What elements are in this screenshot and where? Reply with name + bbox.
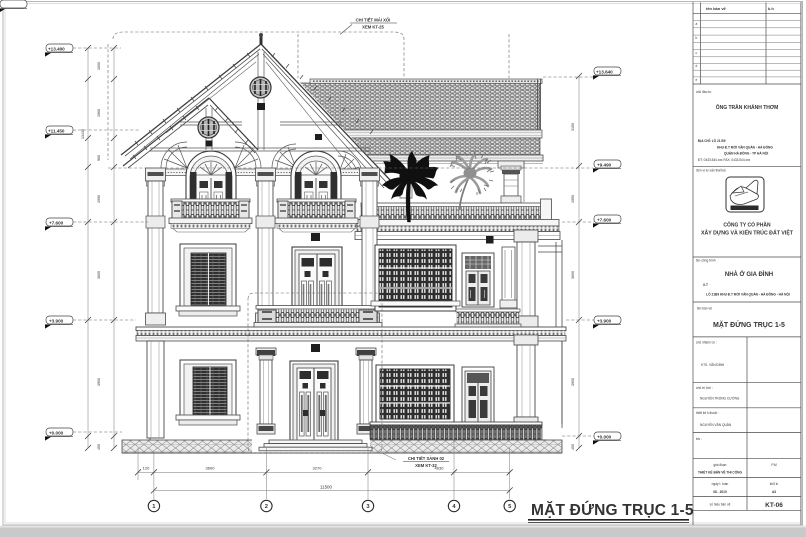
svg-text:3270: 3270 <box>313 466 323 471</box>
svg-text:3900: 3900 <box>571 378 575 386</box>
svg-text:3600: 3600 <box>97 271 101 279</box>
svg-text:ĐT: 0433.544.xxx FAX: 0433.: ĐT: 0433.544.xxx FAX: 0433.544.xxx <box>698 158 751 162</box>
svg-text:LÔ 21B9 KHU Đ.T MỚI VĂN QUÁN -: LÔ 21B9 KHU Đ.T MỚI VĂN QUÁN - HÀ ĐÔNG -… <box>706 292 790 297</box>
svg-text:+11.450: +11.450 <box>48 129 65 134</box>
svg-text:chủ đầu tư: chủ đầu tư <box>696 90 712 94</box>
svg-text:MẶT ĐỨNG TRỤC 1-5: MẶT ĐỨNG TRỤC 1-5 <box>531 501 694 519</box>
svg-text:CHI TIẾT MÁI XỐI: CHI TIẾT MÁI XỐI <box>356 18 391 23</box>
svg-text:+13.640: +13.640 <box>596 70 613 75</box>
svg-text:ngày t. toán: ngày t. toán <box>712 482 729 486</box>
svg-text:4630: 4630 <box>435 466 445 471</box>
svg-text:b: b <box>696 36 698 40</box>
svg-text:NGUYỄN TRỌNG CƯỜNG: NGUYỄN TRỌNG CƯỜNG <box>700 396 740 401</box>
svg-text:A3: A3 <box>772 490 776 494</box>
svg-text:thiết kế k.thuật :: thiết kế k.thuật : <box>696 411 719 415</box>
svg-text:+3.900: +3.900 <box>597 319 612 324</box>
svg-text:KT-06: KT-06 <box>765 502 783 509</box>
svg-text:X.T: X.T <box>703 283 708 287</box>
svg-text:NHÀ Ở GIA ĐÌNH: NHÀ Ở GIA ĐÌNH <box>725 270 773 278</box>
svg-text:450: 450 <box>97 444 101 450</box>
svg-text:13430: 13430 <box>81 129 85 139</box>
svg-text:1990: 1990 <box>97 195 101 203</box>
svg-text:3150: 3150 <box>571 123 575 131</box>
svg-text:KTS. VĂN ĐÌNH: KTS. VĂN ĐÌNH <box>701 363 725 367</box>
svg-text:+0.000: +0.000 <box>597 435 612 440</box>
svg-text:NGUYỄN VĂN QUÂN: NGUYỄN VĂN QUÂN <box>700 422 732 427</box>
svg-text:a: a <box>696 22 698 26</box>
svg-text:P.M: P.M <box>771 463 777 467</box>
svg-text:ÔNG TRẦN KHÁNH THƠM: ÔNG TRẦN KHÁNH THƠM <box>716 103 779 111</box>
svg-text:ĐỊA CHỈ: LÔ 21 B9: ĐỊA CHỈ: LÔ 21 B9 <box>698 138 726 143</box>
svg-text:+7.600: +7.600 <box>49 221 64 226</box>
svg-text:CÔNG TY CỔ PHẦN: CÔNG TY CỔ PHẦN <box>723 221 771 229</box>
svg-text:+9.490: +9.490 <box>597 163 612 168</box>
svg-text:1950: 1950 <box>571 195 575 203</box>
svg-text:k.h: k.h <box>768 6 774 11</box>
svg-text:1000: 1000 <box>97 62 101 70</box>
svg-text:chủ trì t.kế :: chủ trì t.kế : <box>696 386 713 390</box>
svg-text:XÂY DỰNG VÀ KIẾN TRÚC ĐẤT VIỆT: XÂY DỰNG VÀ KIẾN TRÚC ĐẤT VIỆT <box>701 229 793 237</box>
svg-text:ktv :: ktv : <box>696 437 702 441</box>
svg-text:+3.900: +3.900 <box>49 319 64 324</box>
svg-text:+13.400: +13.400 <box>48 47 65 52</box>
svg-text:960: 960 <box>97 155 101 161</box>
svg-text:khổ in: khổ in <box>770 482 779 486</box>
svg-text:MẶT ĐỨNG TRỤC 1-5: MẶT ĐỨNG TRỤC 1-5 <box>713 320 785 329</box>
svg-text:08 - 2010: 08 - 2010 <box>713 490 727 494</box>
svg-text:3600: 3600 <box>206 466 216 471</box>
svg-text:THIẾT KẾ BẢN VẼ THI CÔNG: THIẾT KẾ BẢN VẼ THI CÔNG <box>698 470 742 475</box>
svg-text:e: e <box>696 78 698 82</box>
svg-text:3900: 3900 <box>97 378 101 386</box>
svg-text:tên bản vẽ: tên bản vẽ <box>697 307 712 311</box>
svg-text:tên công trình: tên công trình <box>696 259 716 263</box>
svg-text:+0.000: +0.000 <box>49 431 64 436</box>
svg-text:1960: 1960 <box>97 109 101 117</box>
svg-text:d: d <box>696 64 698 68</box>
svg-text:chủ nhiệm t.k :: chủ nhiệm t.k : <box>696 341 717 345</box>
svg-text:giai đoạn: giai đoạn <box>714 463 727 467</box>
svg-text:120: 120 <box>143 465 150 470</box>
svg-text:đơn vị tư vấn thiết kế: đơn vị tư vấn thiết kế <box>696 169 726 173</box>
svg-text:số hiệu bản vẽ: số hiệu bản vẽ <box>710 503 731 507</box>
svg-text:KHU Đ.T MỚI VĂN QUÁN - HÀ ĐÔNG: KHU Đ.T MỚI VĂN QUÁN - HÀ ĐÔNG <box>717 145 773 150</box>
svg-text:CHI TIẾT SẢNH 02: CHI TIẾT SẢNH 02 <box>408 456 445 461</box>
svg-text:XEM KT-25: XEM KT-25 <box>362 25 384 30</box>
svg-text:450: 450 <box>571 444 575 450</box>
svg-text:tên bản vẽ: tên bản vẽ <box>706 6 727 11</box>
svg-text:11500: 11500 <box>320 484 332 489</box>
svg-text:+7.600: +7.600 <box>597 218 612 223</box>
svg-text:3600: 3600 <box>571 271 575 279</box>
svg-text:QUẬN HÀ ĐÔNG - TP HÀ NỘI: QUẬN HÀ ĐÔNG - TP HÀ NỘI <box>724 151 768 156</box>
svg-text:2: 2 <box>265 504 268 510</box>
